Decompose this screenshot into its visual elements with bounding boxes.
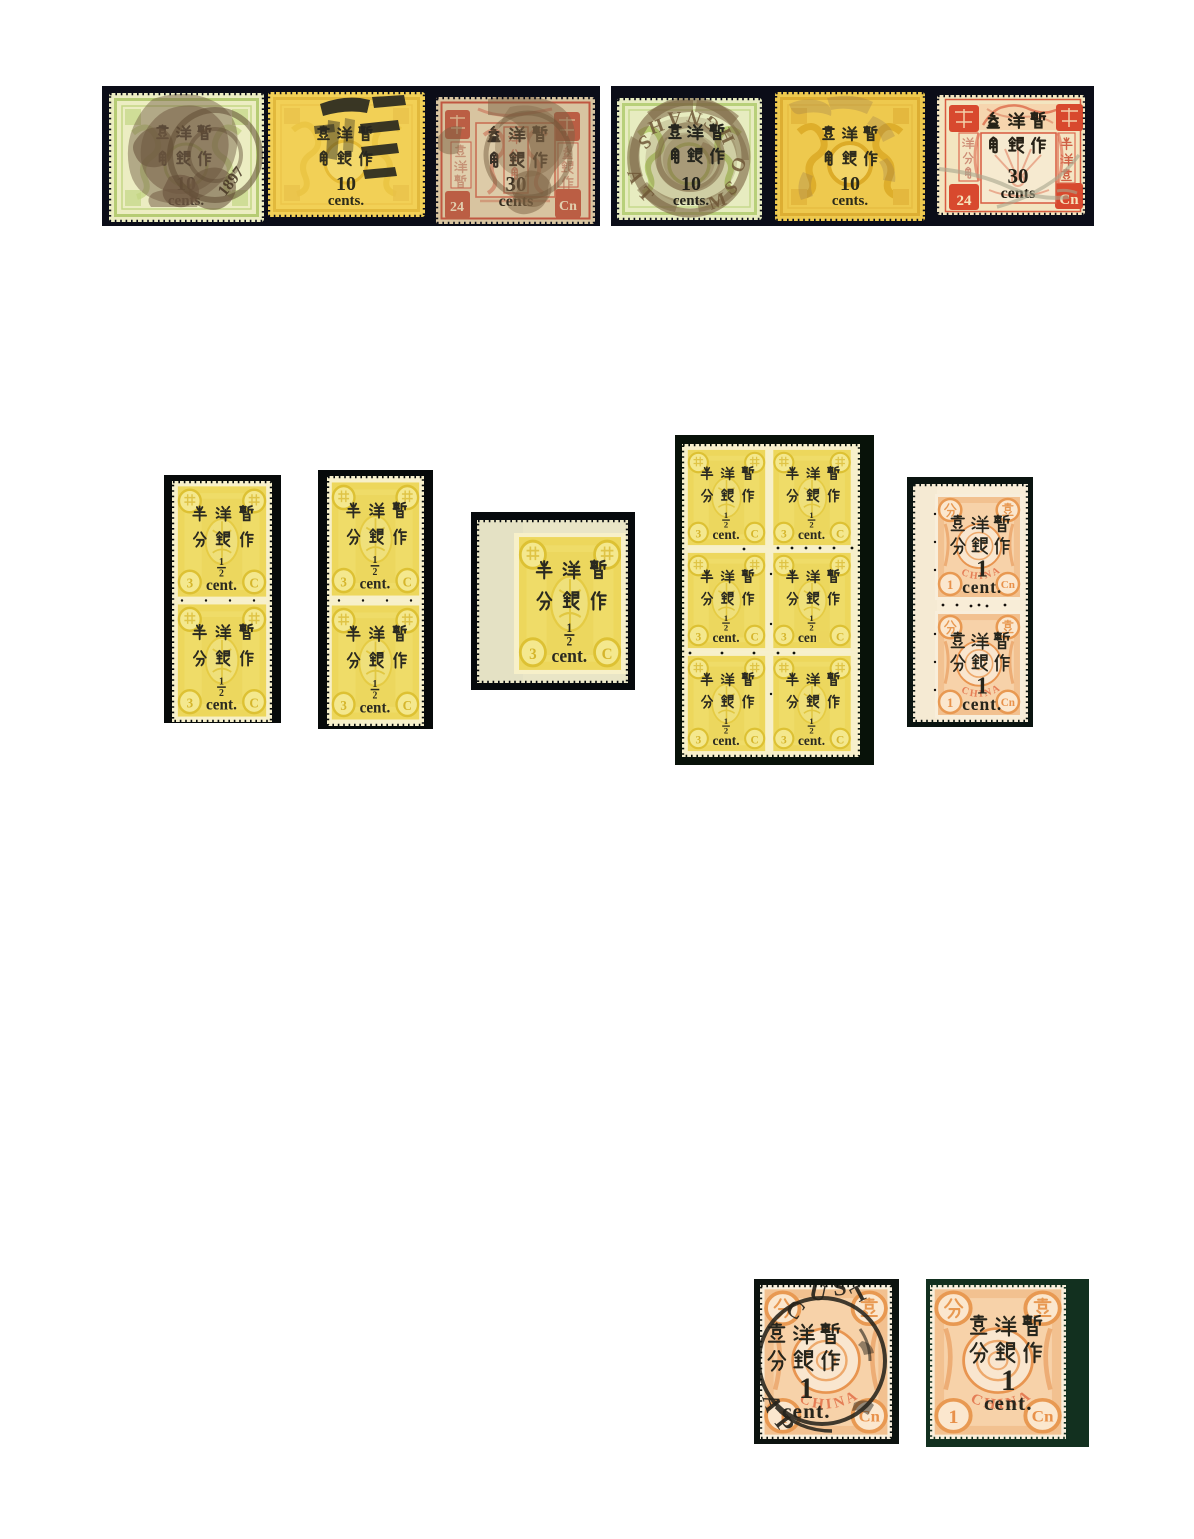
svg-text:cents.: cents. (832, 193, 868, 209)
svg-text:S: S (831, 1285, 848, 1302)
svg-text:cents.: cents. (328, 193, 364, 209)
svg-text:10: 10 (840, 173, 860, 195)
svg-text:10: 10 (681, 173, 701, 195)
svg-text:Cn: Cn (1059, 192, 1079, 208)
svg-text:24: 24 (957, 193, 973, 209)
svg-text:cents.: cents. (673, 193, 709, 209)
svg-text:10: 10 (336, 173, 356, 195)
